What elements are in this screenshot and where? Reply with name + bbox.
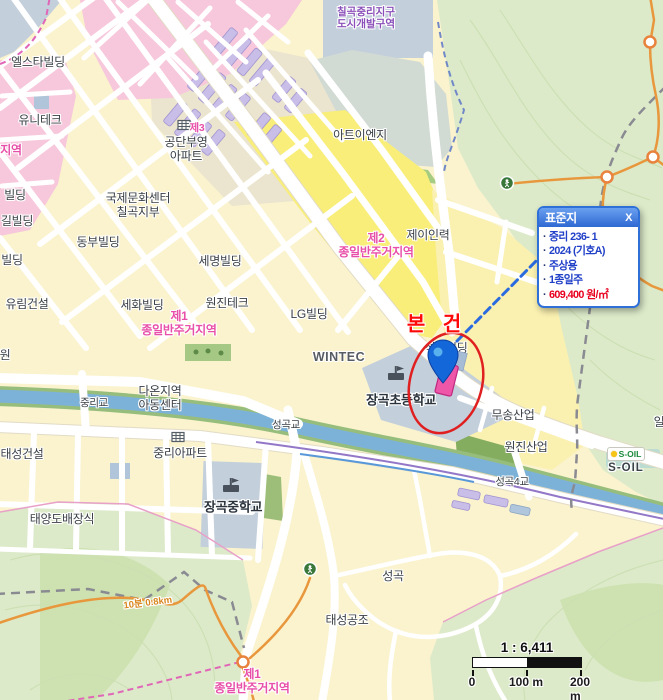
scale-ratio: 1 : 6,411 xyxy=(466,640,588,655)
close-icon[interactable]: X xyxy=(625,212,632,224)
gas-station-poi[interactable]: S-OIL S-OIL xyxy=(596,444,656,474)
map-canvas[interactable]: 칠곡중리지구 도시개발구역엘스타빌딩유니테크지역제3공단부영 아파트국제문화센터… xyxy=(0,0,663,700)
subject-annotation: 본 건 xyxy=(407,308,467,337)
popup-item: ·609,400 원/㎡ xyxy=(543,288,634,302)
popup-item: ·중리 236- 1 xyxy=(543,230,634,244)
popup-title: 표준지 xyxy=(545,209,577,226)
popup-body: ·중리 236- 1·2024 (기호A)·주상용·1종일주·609,400 원… xyxy=(539,227,638,306)
popup-item: ·2024 (기호A) xyxy=(543,244,634,258)
parcel-info-popup: 표준지 X ·중리 236- 1·2024 (기호A)·주상용·1종일주·609… xyxy=(537,206,640,308)
scale-bar: 1 : 6,411 0 100 m 200 m xyxy=(466,640,588,691)
soil-name-label: S-OIL xyxy=(596,462,656,474)
reservoir-area xyxy=(323,0,433,58)
scale-bar-graphic xyxy=(472,657,582,668)
soil-sun-icon xyxy=(611,451,617,457)
scale-tick-200: 200 m xyxy=(570,675,590,700)
map-base-layer xyxy=(0,0,663,700)
soil-logo: S-OIL xyxy=(607,447,646,461)
popup-header[interactable]: 표준지 X xyxy=(539,208,638,227)
soil-logo-text: S-OIL xyxy=(619,449,642,459)
popup-item: ·주상용 xyxy=(543,259,634,273)
scale-tick-0: 0 xyxy=(469,675,476,689)
scale-tick-100: 100 m xyxy=(509,675,543,689)
popup-item: ·1종일주 xyxy=(543,273,634,287)
